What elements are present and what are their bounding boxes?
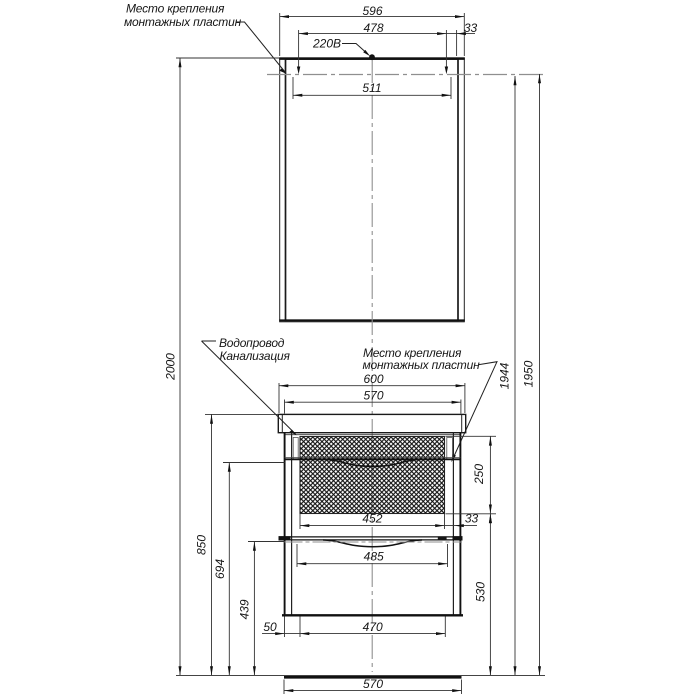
svg-text:470: 470 [363,620,383,634]
svg-text:220В: 220В [312,36,341,50]
svg-text:850: 850 [195,535,209,555]
svg-text:монтажных пластин: монтажных пластин [124,15,242,29]
svg-text:2000: 2000 [164,353,178,381]
svg-text:33: 33 [464,21,478,35]
svg-text:600: 600 [363,372,383,386]
svg-text:250: 250 [472,464,486,485]
svg-text:694: 694 [213,559,227,579]
svg-text:Канализация: Канализация [220,349,291,363]
svg-text:Место крепления: Место крепления [126,2,225,16]
svg-text:50: 50 [263,620,277,634]
svg-text:452: 452 [362,512,382,526]
svg-text:570: 570 [363,389,383,403]
svg-text:монтажных пластин: монтажных пластин [363,358,481,372]
svg-text:530: 530 [474,582,488,602]
svg-text:439: 439 [238,599,252,619]
svg-text:1950: 1950 [522,360,536,387]
svg-text:511: 511 [362,81,381,95]
svg-text:570: 570 [363,677,383,691]
svg-text:478: 478 [363,21,383,35]
svg-text:1944: 1944 [498,362,512,389]
svg-text:485: 485 [364,550,384,564]
svg-text:596: 596 [362,4,382,18]
